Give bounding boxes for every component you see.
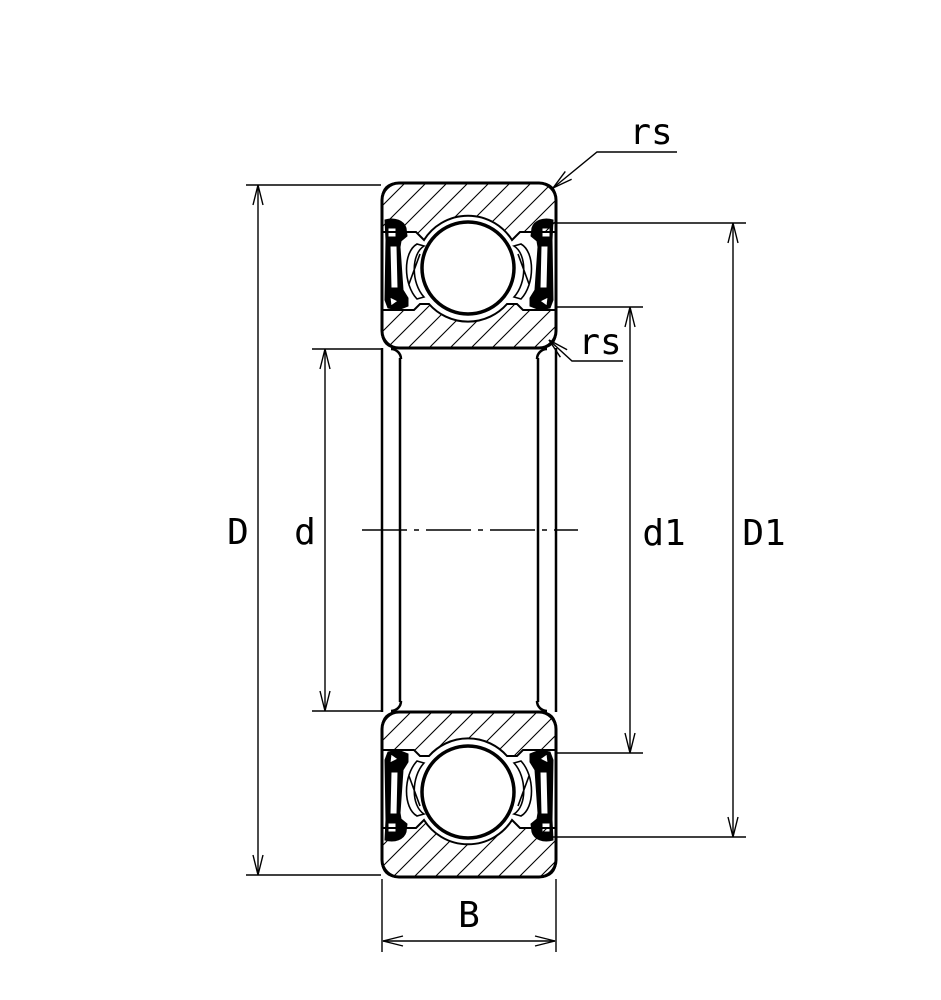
- label-width: B: [458, 895, 480, 936]
- ball: [422, 222, 514, 314]
- bearing-section-top: [382, 183, 556, 348]
- label-shoulder-diameter-outer: D1: [742, 513, 785, 554]
- label-outer-diameter: D: [227, 512, 249, 553]
- label-chamfer-bottom: rs: [578, 322, 621, 363]
- leader-rs-top: [553, 152, 677, 188]
- bearing-technical-drawing: D d d1 D1 B rs rs: [0, 0, 941, 1000]
- ball: [422, 746, 514, 838]
- label-shoulder-diameter-inner: d1: [642, 513, 685, 554]
- label-chamfer-top: rs: [629, 112, 672, 153]
- technical-drawing-canvas: D d d1 D1 B rs rs: [0, 0, 941, 1000]
- label-bore-diameter: d: [294, 512, 316, 553]
- bearing-section-bottom: [382, 712, 556, 877]
